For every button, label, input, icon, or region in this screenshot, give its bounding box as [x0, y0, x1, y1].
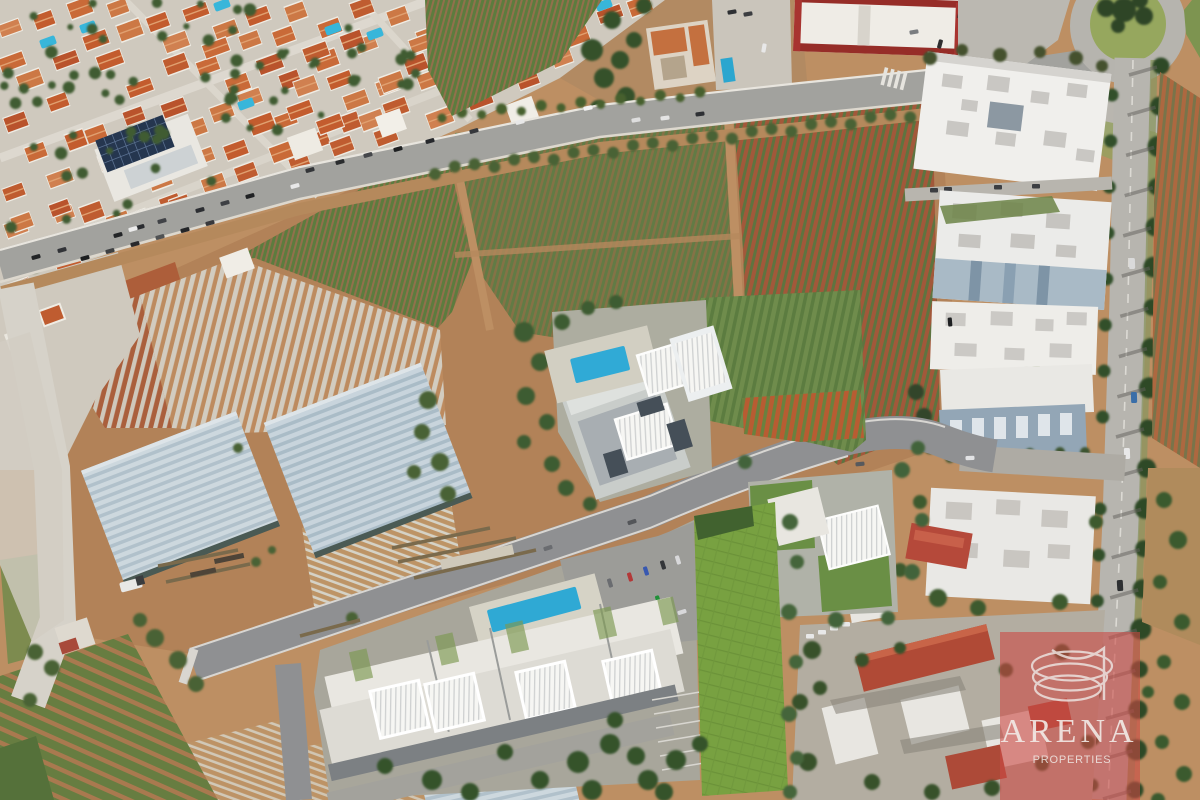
svg-text:PROPERTIES: PROPERTIES	[1033, 754, 1112, 766]
svg-text:ARENA: ARENA	[1000, 713, 1137, 750]
